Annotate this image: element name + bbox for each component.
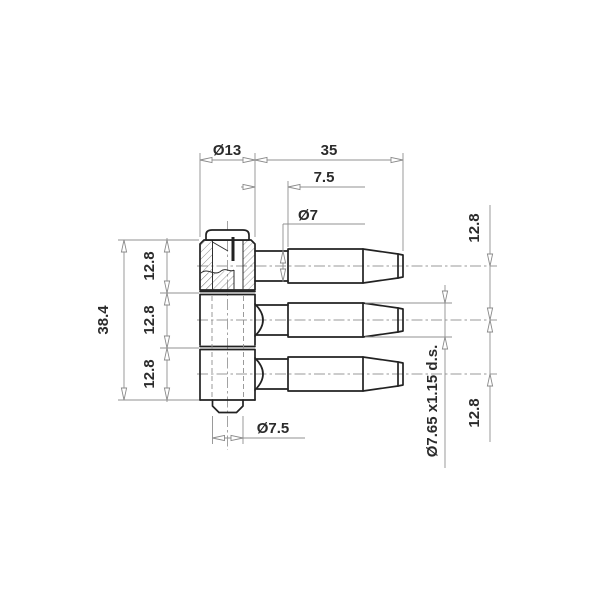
arrowhead bbox=[164, 293, 169, 305]
hinge-technical-drawing: Ø13 35 7.5 Ø7 38.4 12.8 12 bbox=[0, 0, 600, 600]
arrowhead bbox=[487, 374, 492, 386]
dim-cap-od: Ø13 bbox=[200, 142, 255, 163]
arrowhead bbox=[442, 291, 447, 303]
arrowhead bbox=[164, 388, 169, 400]
arrowhead bbox=[213, 435, 225, 440]
arrowhead bbox=[243, 184, 255, 189]
arrowhead bbox=[280, 251, 285, 263]
dim-right-top-label: 12.8 bbox=[466, 213, 483, 242]
arrowhead bbox=[243, 157, 255, 162]
dim-neck-od: Ø7 bbox=[280, 207, 365, 282]
arrowhead bbox=[280, 269, 285, 281]
barrel-seam-1 bbox=[200, 292, 255, 295]
barrel-cap bbox=[206, 230, 249, 240]
arrowhead bbox=[255, 157, 267, 162]
arrowhead bbox=[391, 157, 403, 162]
dim-left-segment-2-label: 12.8 bbox=[141, 305, 158, 334]
arrowhead bbox=[164, 336, 169, 348]
arrowhead bbox=[487, 320, 492, 332]
dim-right-bottom-label: 12.8 bbox=[466, 398, 483, 427]
arrowhead bbox=[200, 157, 212, 162]
technical-drawing-canvas: Ø13 35 7.5 Ø7 38.4 12.8 12 bbox=[0, 0, 600, 600]
dim-body-length-label: 38.4 bbox=[95, 305, 112, 335]
dim-right-pin-spacing: 12.8 12.8 bbox=[466, 205, 493, 442]
dim-left-segments: 12.8 12.8 12.8 bbox=[141, 238, 170, 402]
dim-body-length: 38.4 bbox=[95, 240, 127, 400]
dim-neck-length: 7.5 bbox=[241, 169, 365, 190]
arrowhead bbox=[487, 308, 492, 320]
section-hatch-right-wall bbox=[243, 240, 255, 290]
screw-seat-line bbox=[213, 242, 229, 251]
arrowhead bbox=[121, 388, 126, 400]
dim-cap-od-label: Ø13 bbox=[213, 142, 241, 159]
dim-neck-length-label: 7.5 bbox=[314, 169, 335, 186]
dim-left-segment-1-label: 12.8 bbox=[141, 251, 158, 280]
arrowhead bbox=[288, 184, 300, 189]
arrowhead bbox=[164, 348, 169, 360]
arrowhead bbox=[231, 435, 243, 440]
dim-pin-length-label: 35 bbox=[321, 142, 338, 159]
arrowhead bbox=[487, 254, 492, 266]
centerlines bbox=[197, 221, 497, 450]
dim-left-segment-3-label: 12.8 bbox=[141, 359, 158, 388]
arrowhead bbox=[164, 281, 169, 293]
dim-pin-length: 35 bbox=[255, 142, 403, 163]
dim-thread-spec-label: Ø7.65 x1.15 d.s. bbox=[424, 345, 441, 458]
arrowhead bbox=[164, 240, 169, 252]
arrowhead bbox=[121, 240, 126, 252]
dim-thread-spec: Ø7.65 x1.15 d.s. bbox=[424, 285, 448, 468]
dim-neck-od-label: Ø7 bbox=[298, 207, 318, 224]
dim-stub-od: Ø7.5 bbox=[213, 420, 306, 441]
dim-stub-od-label: Ø7.5 bbox=[257, 420, 290, 437]
arrowhead bbox=[442, 337, 447, 349]
